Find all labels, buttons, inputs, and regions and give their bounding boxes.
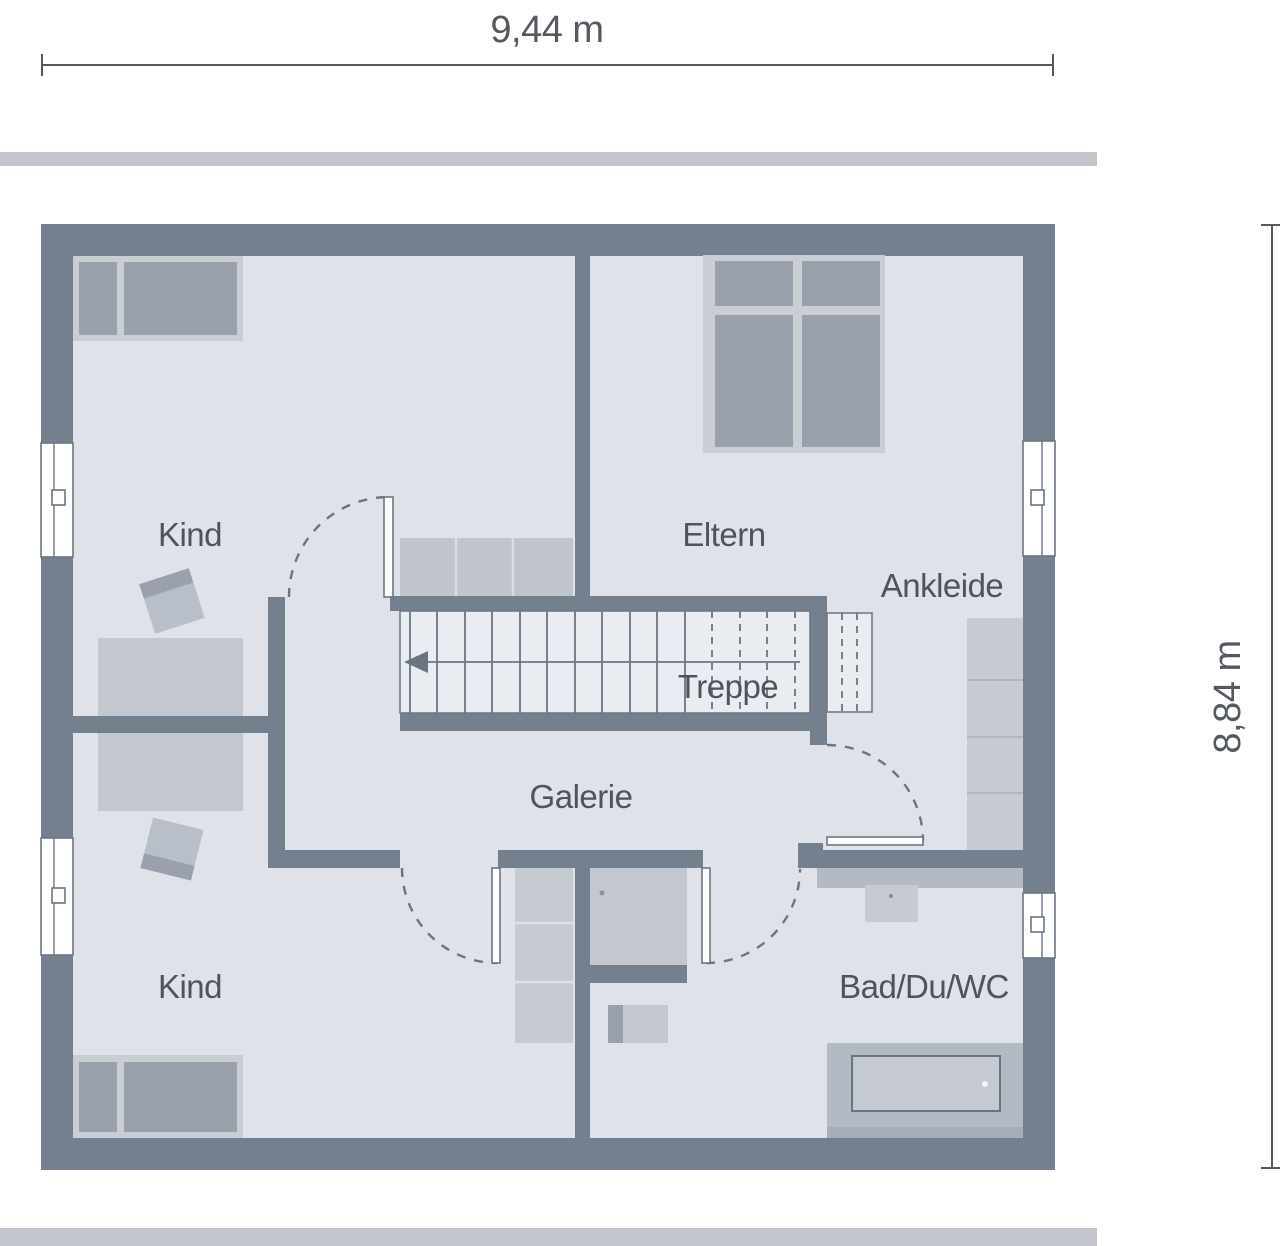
window-handle bbox=[52, 490, 65, 505]
wall-galerie-south-west bbox=[268, 850, 400, 868]
wc-cistern bbox=[608, 1005, 623, 1043]
stairs bbox=[400, 611, 872, 713]
label-room-kind-top: Kind bbox=[158, 516, 222, 553]
label-room-galerie: Galerie bbox=[530, 778, 633, 815]
label-room-ankleide: Ankleide bbox=[881, 567, 1004, 604]
section-bar-bottom bbox=[0, 1228, 1097, 1246]
bathtub-edge bbox=[827, 1127, 1023, 1138]
window-handle bbox=[52, 888, 65, 903]
wardrobe-low bbox=[400, 538, 573, 596]
dimension-width-label: 9,44 m bbox=[490, 9, 603, 51]
wc bbox=[623, 1005, 668, 1043]
door-leaf bbox=[702, 868, 710, 963]
dimension-height-label: 8,84 m bbox=[1207, 640, 1249, 753]
wall-kind-divider bbox=[41, 716, 285, 733]
wall-galerie-south-mid bbox=[498, 850, 703, 868]
outer-wall-bottom bbox=[41, 1138, 1055, 1170]
bed-mattress-left bbox=[715, 315, 793, 447]
shower bbox=[590, 868, 687, 965]
washbasin bbox=[865, 885, 918, 922]
floor-plan-drawing: 9,44 m 8,84 m bbox=[0, 0, 1280, 1246]
bed-pillow bbox=[79, 1062, 117, 1132]
door-leaf bbox=[384, 497, 393, 597]
outer-wall-right bbox=[1023, 224, 1055, 1170]
window-bad bbox=[1023, 893, 1055, 958]
furniture-ankleide bbox=[967, 618, 1023, 850]
stair-upper-landing bbox=[827, 613, 872, 712]
window-eltern bbox=[1023, 441, 1055, 556]
section-bar-top bbox=[0, 152, 1097, 166]
desk bbox=[98, 733, 243, 811]
furniture-storage bbox=[515, 868, 573, 1043]
dimension-right: 8,84 m bbox=[1207, 225, 1280, 1168]
outer-wall-left bbox=[41, 224, 73, 1170]
wall-shower-south bbox=[590, 965, 687, 983]
vanity-counter bbox=[817, 868, 1023, 888]
wall-eltern-west bbox=[575, 253, 590, 612]
shower-drain bbox=[600, 891, 605, 896]
window-kind-bottom bbox=[41, 838, 73, 955]
bed-pillow-left bbox=[715, 261, 793, 306]
label-room-eltern: Eltern bbox=[682, 516, 765, 553]
bed-mattress-right bbox=[802, 315, 880, 447]
bathtub-drain bbox=[982, 1081, 988, 1087]
label-room-treppe: Treppe bbox=[678, 668, 778, 705]
wall-stair-east bbox=[810, 596, 827, 745]
desk bbox=[98, 638, 243, 716]
wall-central-vertical bbox=[575, 850, 590, 1138]
bed-mattress bbox=[124, 1062, 237, 1132]
outer-wall-top bbox=[41, 224, 1055, 256]
label-room-bad: Bad/Du/WC bbox=[839, 968, 1009, 1005]
bed-pillow-right bbox=[802, 261, 880, 306]
bathtub bbox=[852, 1056, 1000, 1111]
floor-plan-page: 9,44 m 8,84 m bbox=[0, 0, 1280, 1246]
washbasin-drain bbox=[889, 894, 893, 898]
wall-stair-north bbox=[390, 596, 827, 611]
door-leaf bbox=[492, 868, 500, 963]
bed-mattress bbox=[124, 262, 237, 335]
shelf-column bbox=[515, 868, 573, 1043]
wall-bad-north bbox=[798, 850, 1023, 868]
wardrobe-tall bbox=[967, 618, 1023, 850]
window-kind-top bbox=[41, 443, 73, 557]
wall-stair-south bbox=[400, 713, 810, 731]
dimension-top: 9,44 m bbox=[42, 9, 1053, 76]
label-room-kind-bottom: Kind bbox=[158, 968, 222, 1005]
bed-pillow bbox=[79, 262, 117, 335]
door-leaf bbox=[827, 837, 923, 845]
window-handle bbox=[1031, 490, 1044, 505]
window-handle bbox=[1031, 917, 1044, 932]
